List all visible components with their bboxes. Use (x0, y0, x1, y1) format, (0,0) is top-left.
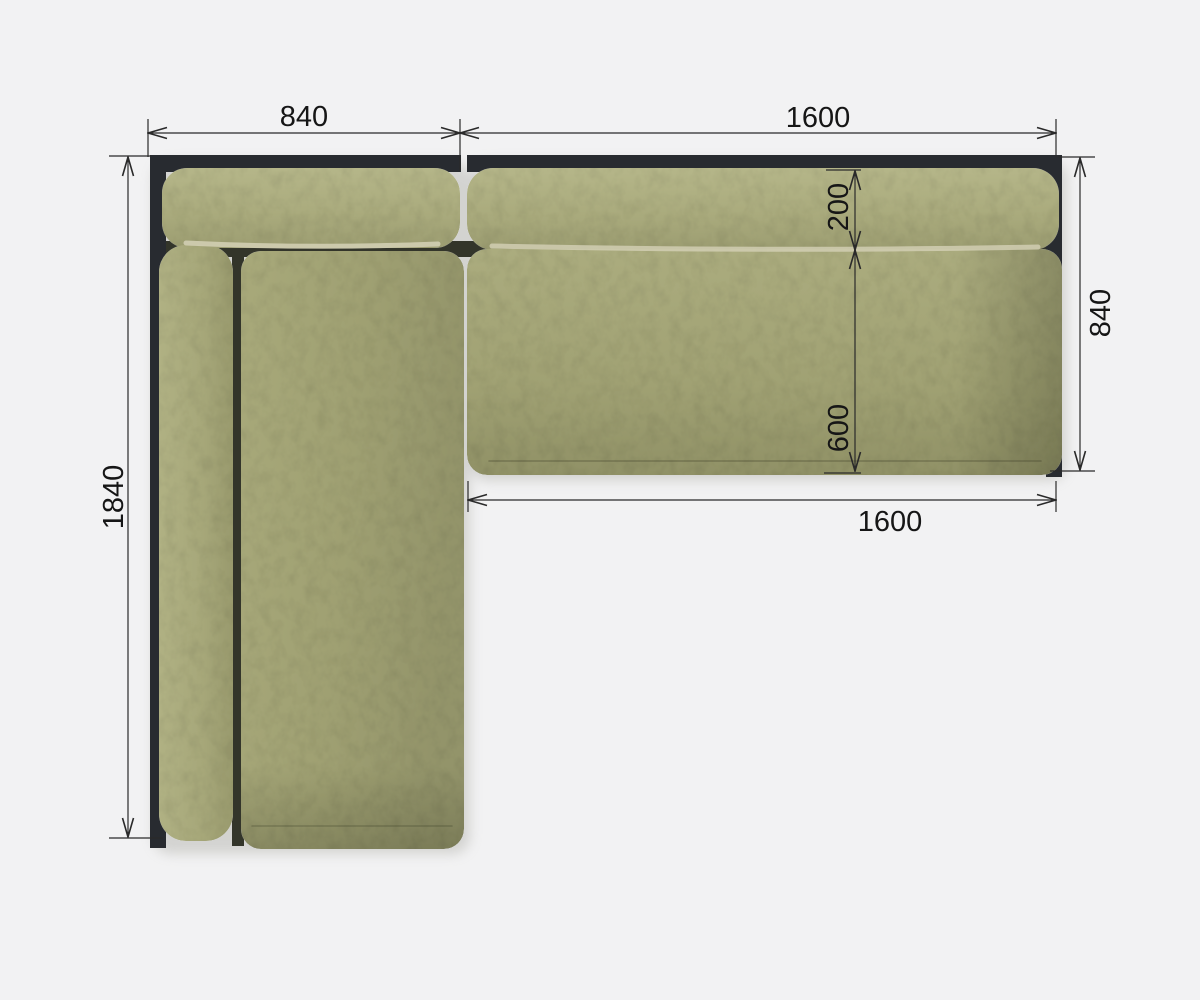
armrest-cushion-left (159, 245, 233, 841)
label-right-section-depth: 840 (1085, 289, 1117, 337)
label-backrest-depth: 200 (823, 183, 855, 231)
diagram-canvas: 840 1600 1840 840 200 600 1600 (0, 0, 1200, 1000)
sofa-dimension-diagram: 840 1600 1840 840 200 600 1600 (0, 0, 1200, 1000)
label-left-section-depth: 1840 (98, 465, 130, 530)
label-seat-width: 1600 (858, 506, 923, 538)
label-seat-depth: 600 (823, 404, 855, 452)
chaise-edge-shade (241, 251, 464, 849)
back-cushion-left (162, 168, 460, 248)
label-right-section-width: 1600 (786, 102, 851, 134)
label-left-section-width: 840 (280, 101, 328, 133)
back-cushion-right (467, 168, 1059, 250)
right-seat-edge-shade (467, 249, 1062, 475)
